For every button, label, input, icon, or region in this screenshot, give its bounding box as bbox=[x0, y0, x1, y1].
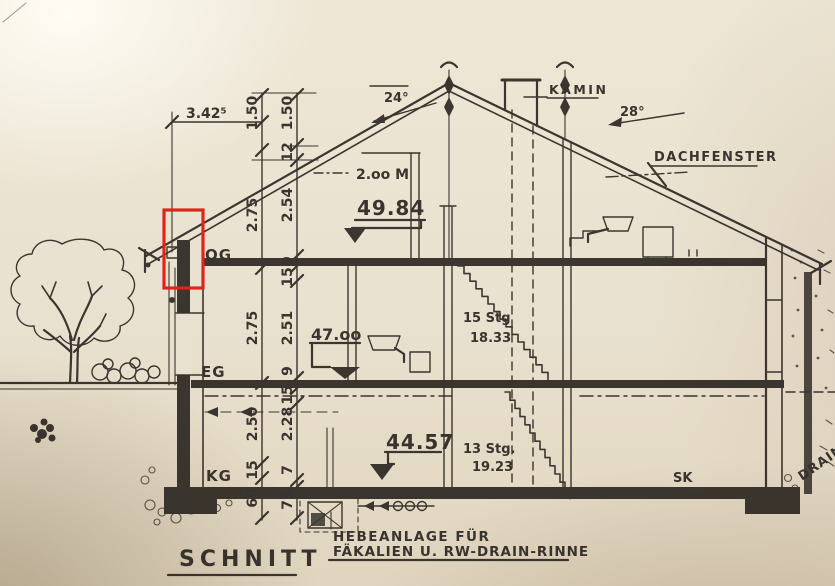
elevation-kg: 44.57 bbox=[370, 430, 454, 480]
floor-label-kg: KG bbox=[206, 467, 232, 485]
chain-outer-dim: 2.75 bbox=[245, 198, 261, 233]
headroom-label: 2.oo M bbox=[356, 167, 409, 183]
left-footing bbox=[164, 487, 217, 514]
elevation-attic: 49.84 bbox=[344, 196, 425, 243]
chain-outer-dim: 15 bbox=[245, 460, 261, 479]
elevation-value: 49.84 bbox=[357, 196, 425, 220]
drawing-title: SCHNITT bbox=[168, 547, 322, 575]
roof-angle-left-label: 24° bbox=[384, 91, 409, 106]
building-structure bbox=[164, 139, 812, 514]
chain-outer-dim: 2.50 bbox=[245, 406, 261, 441]
level-triangle bbox=[370, 464, 394, 480]
top-width-dim: 3.42⁵ bbox=[186, 106, 227, 122]
right-footing bbox=[745, 487, 800, 514]
stairs-lower-value: 19.23 bbox=[472, 460, 513, 475]
stairs-lower-count: 13 Stg. bbox=[463, 442, 515, 457]
drain-label: DRAIN bbox=[796, 442, 835, 484]
og-interior-wall bbox=[348, 266, 356, 380]
level-triangle bbox=[344, 228, 366, 243]
tub-attic bbox=[643, 227, 673, 257]
roof-angle-right-label: 28° bbox=[620, 105, 645, 120]
left-window bbox=[176, 313, 192, 375]
chimney bbox=[502, 80, 540, 487]
elevation-og: 47.oo bbox=[310, 325, 361, 379]
sk-label: SK bbox=[673, 471, 693, 486]
chimney-wall bbox=[563, 139, 571, 487]
note-line2: FÄKALIEN U. RW-DRAIN-RINNE bbox=[333, 543, 589, 560]
page-corner-mark bbox=[3, 3, 26, 22]
chain-inner-dim: 1.50 bbox=[280, 95, 296, 130]
terrain-left bbox=[0, 383, 180, 389]
stairs-upper-value: 18.33 bbox=[470, 331, 511, 346]
kamin-label: KAMIN bbox=[549, 82, 608, 97]
chain-inner-dim: 75 bbox=[280, 490, 296, 509]
stairs-upper-count: 15 Stg bbox=[463, 311, 511, 326]
chain-outer-dim: 1.50 bbox=[245, 95, 261, 130]
downpipe bbox=[169, 262, 175, 385]
chain-inner-dim: 2.51 bbox=[280, 311, 296, 346]
scanned-section-drawing: 3.42⁵ 1.50 2.75 2.75 2.50 15 60 1.50 12 … bbox=[0, 0, 835, 586]
chain-inner-dim: 15 bbox=[280, 267, 296, 286]
kg-floor-slab bbox=[177, 487, 798, 499]
dachfenster-label: DACHFENSTER bbox=[654, 150, 778, 165]
bushes bbox=[30, 358, 160, 443]
chain-inner-dim: 9 bbox=[280, 366, 296, 376]
arrow-head bbox=[608, 117, 622, 127]
tree bbox=[11, 239, 135, 383]
chain-inner-dim: 2.28 bbox=[280, 407, 296, 442]
elevation-value: 47.oo bbox=[311, 325, 361, 344]
arrow-head bbox=[371, 114, 385, 123]
chain-inner-dim: 2.54 bbox=[280, 187, 296, 222]
title-text: SCHNITT bbox=[179, 547, 322, 572]
chain-outer-dim: 60 bbox=[245, 488, 261, 508]
floor-label-eg: EG bbox=[201, 363, 226, 381]
roof bbox=[139, 83, 831, 284]
floor-label-og: OG bbox=[205, 246, 232, 264]
chain-outer-dim: 2.75 bbox=[245, 311, 261, 346]
kamin-axis bbox=[557, 63, 573, 141]
chain-inner-dim: 7 bbox=[280, 465, 296, 475]
note-line1: HEBEANLAGE FÜR bbox=[333, 527, 490, 545]
chain-inner-dim: 9 bbox=[280, 256, 296, 266]
chain-inner-dim: 12 bbox=[280, 142, 296, 161]
chain-inner-dim: 15 bbox=[280, 385, 296, 404]
elevation-value: 44.57 bbox=[386, 430, 454, 454]
